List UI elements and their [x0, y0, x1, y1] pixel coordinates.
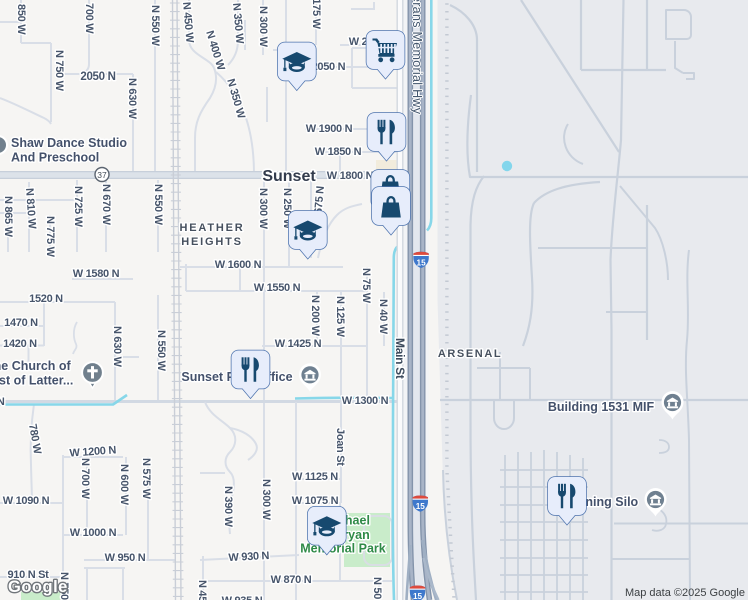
svg-text:N 750 W: N 750 W: [53, 50, 65, 92]
svg-text:Shaw Dance Studio: Shaw Dance Studio: [11, 136, 127, 150]
svg-text:N 600 W: N 600 W: [118, 464, 130, 506]
svg-text:Veterans Memorial Hwy: Veterans Memorial Hwy: [410, 0, 424, 115]
svg-text:W 1550 N: W 1550 N: [254, 282, 301, 294]
svg-text:W 1300 N: W 1300 N: [342, 395, 389, 407]
svg-text:W 1800 N: W 1800 N: [327, 170, 374, 182]
svg-text:N 175 W: N 175 W: [310, 0, 322, 30]
svg-text:N 550 W: N 550 W: [155, 330, 167, 372]
svg-text:Map data ©2025 Google: Map data ©2025 Google: [625, 587, 745, 599]
svg-text:N 550 W: N 550 W: [152, 184, 164, 226]
svg-text:W 930 N: W 930 N: [228, 550, 270, 564]
svg-text:675 N: 675 N: [313, 185, 327, 214]
svg-text:N 75 W: N 75 W: [360, 268, 372, 304]
svg-text:N 630 W: N 630 W: [111, 326, 123, 368]
svg-text:N 390 W: N 390 W: [222, 486, 234, 528]
svg-text:850 W: 850 W: [15, 4, 27, 35]
svg-text:N 865 W: N 865 W: [2, 196, 14, 238]
svg-text:Joan St: Joan St: [334, 428, 346, 466]
svg-text:Google: Google: [8, 578, 68, 596]
svg-text:W 1075 N: W 1075 N: [292, 495, 339, 507]
svg-text:W 1425 N: W 1425 N: [275, 338, 322, 350]
svg-text:Main St: Main St: [393, 338, 407, 379]
svg-text:W 1600 N: W 1600 N: [215, 259, 262, 271]
svg-text:1420 N: 1420 N: [3, 338, 37, 350]
svg-text:HEIGHTS: HEIGHTS: [181, 236, 243, 248]
svg-text:HEATHER: HEATHER: [180, 222, 245, 234]
svg-text:37: 37: [97, 170, 107, 180]
svg-text:N 450 W: N 450 W: [196, 580, 208, 600]
svg-text:N 300 W: N 300 W: [260, 479, 272, 521]
svg-text:N 725 W: N 725 W: [72, 186, 84, 228]
svg-text:N 670 W: N 670 W: [100, 184, 112, 226]
svg-text:ARSENAL: ARSENAL: [438, 348, 502, 360]
svg-text:N 50 W: N 50 W: [371, 577, 383, 600]
svg-text:W 1300 N: W 1300 N: [0, 396, 5, 408]
svg-text:The Church of: The Church of: [0, 359, 72, 373]
svg-text:N 125 W: N 125 W: [334, 296, 346, 338]
svg-text:N 700 W: N 700 W: [79, 458, 91, 500]
svg-text:W 1090 N: W 1090 N: [3, 495, 50, 507]
svg-text:N 40 W: N 40 W: [377, 299, 389, 335]
svg-text:Building 1531 MIF: Building 1531 MIF: [548, 400, 655, 414]
svg-text:W 935 N: W 935 N: [222, 595, 263, 600]
svg-text:Christ of Latter...: Christ of Latter...: [0, 374, 73, 388]
svg-text:W 1850 N: W 1850 N: [315, 146, 362, 158]
svg-text:N 300 W: N 300 W: [257, 188, 269, 230]
svg-text:W 1000 N: W 1000 N: [70, 527, 117, 539]
svg-text:N 200 W: N 200 W: [309, 295, 321, 337]
svg-text:W 870 N: W 870 N: [271, 574, 312, 586]
svg-text:1520 N: 1520 N: [29, 293, 63, 305]
svg-text:2050 N: 2050 N: [80, 71, 115, 83]
svg-text:W 950 N: W 950 N: [105, 552, 146, 564]
svg-text:N 630 W: N 630 W: [126, 78, 138, 120]
svg-text:Sunset: Sunset: [262, 168, 316, 185]
svg-text:N 575 W: N 575 W: [140, 458, 152, 500]
svg-text:W 1125 N: W 1125 N: [292, 471, 338, 483]
svg-text:W 1580 N: W 1580 N: [73, 268, 120, 280]
svg-text:And Preschool: And Preschool: [11, 151, 99, 165]
svg-text:N 775 W: N 775 W: [44, 216, 56, 258]
svg-text:N 550 W: N 550 W: [149, 5, 161, 47]
svg-text:700 W: 700 W: [83, 3, 95, 34]
svg-text:N 300 W: N 300 W: [257, 6, 269, 48]
svg-text:1470 N: 1470 N: [4, 317, 38, 329]
svg-text:W 1900 N: W 1900 N: [306, 123, 353, 135]
